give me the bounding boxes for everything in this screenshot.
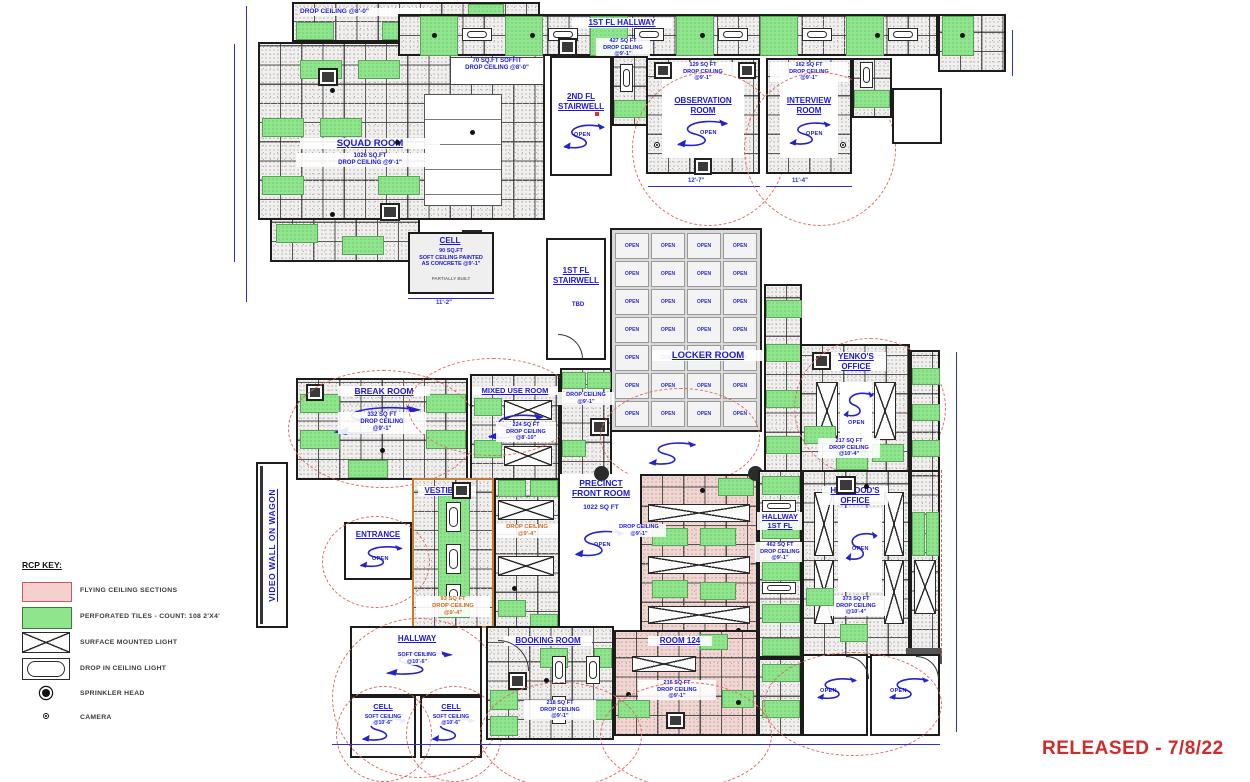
perforated-tile <box>840 624 868 642</box>
perforated-tile <box>942 16 974 56</box>
perforated-tile <box>618 700 650 718</box>
locker-cell: OPEN <box>723 261 757 287</box>
perforated-tile <box>300 430 340 449</box>
perforated-tile <box>766 300 802 318</box>
room-precinct-label: PRECINCT FRONT ROOM <box>560 478 642 498</box>
open-label: OPEN <box>574 132 591 138</box>
recessed-light <box>738 62 756 79</box>
locker-cell: OPEN <box>615 261 649 287</box>
legend-sprinkler-label: SPRINKLER HEAD <box>80 690 145 697</box>
open-label: OPEN <box>806 131 823 137</box>
room-precinct-info: 1022 SQ FT <box>568 504 634 512</box>
ceiling-slope-arrow <box>640 440 700 468</box>
dimension-label: 11'-2" <box>436 300 452 306</box>
sprinkler-head <box>875 33 880 38</box>
released-stamp: RELEASED - 7/8/22 <box>1042 738 1224 760</box>
camera <box>840 142 846 148</box>
open-label: OPEN <box>372 556 389 562</box>
perforated-tile <box>426 394 466 413</box>
surface-mounted-light <box>498 500 554 520</box>
sprinkler-head <box>512 586 517 591</box>
room-break-label: BREAK ROOM <box>338 386 430 396</box>
perforated-tile <box>766 436 802 454</box>
perforated-tile <box>766 344 802 362</box>
locker-cell: OPEN <box>615 289 649 315</box>
surface-mounted-light <box>648 556 750 574</box>
recessed-light <box>306 384 324 401</box>
perforated-tile <box>426 430 466 449</box>
drop-in-ceiling-light <box>446 544 461 574</box>
locker-cell: OPEN <box>723 289 757 315</box>
surface-mounted-light <box>498 556 554 576</box>
dimension-line <box>1012 30 1013 76</box>
drop-in-ceiling-light <box>552 656 566 684</box>
legend-perforated-label: PERFORATED TILES - COUNT: 108 2'X4' <box>80 613 220 620</box>
mid-tiles-note: DROP CEILING @9'-4" <box>496 524 558 538</box>
locker-cell: OPEN <box>651 233 685 259</box>
dimension-line <box>956 352 957 732</box>
room-hallway-1st-fl-info: 462 SQ FT DROP CEILING @9'-1" <box>755 542 805 562</box>
room-124-info: 216 SQ FT DROP CEILING @9'-1" <box>638 680 716 700</box>
locker-cell: OPEN <box>723 401 757 427</box>
perforated-tile <box>490 716 518 736</box>
sprinkler-head <box>700 488 705 493</box>
locker-cell: OPEN <box>651 373 685 399</box>
legend-flying-label: FLYING CEILING SECTIONS <box>80 587 177 594</box>
recessed-light <box>590 418 609 436</box>
locker-cell: OPEN <box>687 233 721 259</box>
video-wall-label: VIDEO WALL ON WAGON <box>267 489 277 602</box>
perforated-tile <box>296 22 334 40</box>
room-cell-upper-label: CELL <box>430 236 470 246</box>
recessed-light <box>380 203 400 221</box>
camera <box>654 142 660 148</box>
column <box>594 466 609 481</box>
perforated-tile <box>700 582 736 600</box>
dimension-label: 12'-7" <box>688 178 704 184</box>
sprinkler-head <box>960 33 965 38</box>
surface-mounted-light <box>632 656 696 672</box>
open-label: OPEN <box>890 688 907 694</box>
room-booking-label: BOOKING ROOM <box>504 636 592 646</box>
sprinkler-head <box>330 212 335 217</box>
room-cell-a-label: CELL <box>368 702 398 711</box>
room-mixed-use-label: MIXED USE ROOM <box>472 386 558 395</box>
locker-cell: OPEN <box>615 317 649 343</box>
locker-cell: OPEN <box>723 373 757 399</box>
flying-section-note: DROP CEILING @9'-1" <box>612 524 666 537</box>
room-interview-floor <box>780 76 838 158</box>
sprinkler-head <box>380 448 385 453</box>
drop-in-ceiling-light <box>888 28 918 41</box>
legend-camera-icon <box>43 713 49 719</box>
open-label: OPEN <box>594 542 611 548</box>
room-yenko-label: YENKO'S OFFICE <box>826 352 886 371</box>
surface-mounted-light <box>504 400 552 420</box>
drop-in-ceiling-light <box>620 64 633 92</box>
perforated-tile <box>652 580 688 598</box>
perforated-tile <box>562 440 586 457</box>
perforated-tile <box>562 372 586 389</box>
legend-camera-label: CAMERA <box>80 714 112 721</box>
perforated-tile <box>762 700 800 718</box>
perforated-tile <box>342 236 384 255</box>
open-label: OPEN <box>820 688 837 694</box>
room-observation-info: 129 SQ FT DROP CEILING @9'-1" <box>664 62 742 82</box>
perforated-tile <box>587 372 611 389</box>
perforated-tile <box>498 480 526 497</box>
room-hallway-cells-info: SOFT CEILING @10'-6" <box>392 652 442 665</box>
perforated-tile <box>700 528 736 546</box>
perforated-tile <box>420 16 458 56</box>
room-hallway-cells-label: HALLWAY <box>390 634 444 644</box>
perforated-tile <box>912 512 925 556</box>
room-squad-label: SQUAD ROOM <box>300 138 440 149</box>
dimension-line <box>246 6 247 302</box>
locker-cell: OPEN <box>615 373 649 399</box>
video-wall-box: VIDEO WALL ON WAGON <box>256 462 288 628</box>
locker-cell: OPEN <box>651 289 685 315</box>
room-observation-floor <box>662 76 744 158</box>
dimension-line <box>766 186 852 187</box>
perforated-tile <box>760 16 798 56</box>
video-wall-inner-line <box>260 466 263 624</box>
recessed-light <box>558 38 577 56</box>
perforated-tile <box>262 118 304 137</box>
perforated-tile <box>490 690 518 710</box>
squad-open-area <box>424 94 502 206</box>
legend-surface-light-icon <box>22 632 70 653</box>
room-2nd-fl-stairwell <box>550 56 612 176</box>
perforated-tile <box>262 176 304 195</box>
room-mixed-use-info: 224 SQ FT DROP CEILING @8'-10" <box>496 422 556 442</box>
room-haywood-info: 373 SQ FT DROP CEILING @10'-4" <box>826 596 886 616</box>
locker-cell: OPEN <box>615 345 649 371</box>
room-interview-label: INTERVIEW ROOM <box>782 96 836 115</box>
surface-mounted-light <box>648 606 750 624</box>
room-interview-info: 162 SQ FT DROP CEILING @9'-1" <box>770 62 848 82</box>
sprinkler-head <box>864 484 869 489</box>
room-locker-label: LOCKER ROOM <box>652 350 764 361</box>
perforated-tile <box>348 460 388 478</box>
legend-drop-light-icon <box>22 658 70 680</box>
perforated-tile <box>474 398 502 416</box>
drop-in-ceiling-light <box>586 656 600 684</box>
legend-flying-swatch <box>22 582 72 602</box>
drop-in-ceiling-light <box>860 62 873 88</box>
room-cell-a-info: SOFT CEILING @10'-6" <box>354 714 412 726</box>
room-1st-fl-hallway-label: 1ST FL HALLWAY <box>572 18 672 28</box>
perforated-tile <box>722 690 754 708</box>
sprinkler-head <box>432 33 437 38</box>
recessed-light <box>812 352 831 370</box>
surface-mounted-light <box>874 382 896 440</box>
dimension-line <box>648 186 760 187</box>
recessed-light <box>694 158 712 175</box>
perforated-tile <box>676 16 714 56</box>
drop-in-ceiling-light <box>802 28 832 41</box>
locker-cell: OPEN <box>687 317 721 343</box>
locker-cell: OPEN <box>615 401 649 427</box>
room-cell-b-info: SOFT CEILING @10'-6" <box>422 714 480 726</box>
coverage-boundary <box>941 470 942 656</box>
locker-cell: OPEN <box>723 233 757 259</box>
recessed-light <box>654 62 672 79</box>
sprinkler-head <box>544 678 549 683</box>
open-label: OPEN <box>700 130 717 136</box>
room-booking-info: 218 SQ FT DROP CEILING @9'-1" <box>524 700 596 720</box>
drop-in-ceiling-light <box>462 28 492 41</box>
room-cell-upper-note: PARTIALLY BUILT <box>428 276 474 281</box>
perforated-tile <box>854 90 890 108</box>
perforated-tile <box>762 638 800 656</box>
locker-cell: OPEN <box>687 401 721 427</box>
perforated-tile <box>474 440 502 458</box>
perforated-tile <box>762 604 800 623</box>
room-vestibule-info: 93 SQ FT DROP CEILING @9'-4" <box>416 596 490 617</box>
room-124-label: ROOM 124 <box>648 636 712 646</box>
soffit-note: 70 SQ.FT SOFFIT DROP CEILING @8'-0" <box>450 57 544 85</box>
perforated-tile <box>766 390 802 408</box>
recessed-light <box>836 476 856 494</box>
locker-cell: OPEN <box>615 233 649 259</box>
perforated-tile <box>718 478 754 496</box>
sprinkler-head <box>736 700 741 705</box>
recessed-light <box>318 68 338 86</box>
room-break-info: 332 SQ FT DROP CEILING @9'-1" <box>338 412 426 434</box>
perforated-tile <box>498 600 526 617</box>
perforated-tile <box>505 16 543 56</box>
legend-surface-light-label: SURFACE MOUNTED LIGHT <box>80 639 177 646</box>
locker-cell: OPEN <box>651 261 685 287</box>
drop-in-ceiling-light <box>762 582 796 594</box>
recessed-light <box>452 482 471 499</box>
room-1st-fl-stairwell-label: 1ST FL STAIRWELL <box>548 266 604 285</box>
recessed-light <box>508 672 527 690</box>
dimension-line <box>408 298 494 299</box>
sprinkler-head <box>470 130 475 135</box>
open-label: OPEN <box>852 546 869 552</box>
perforated-tile <box>912 368 940 385</box>
legend-perforated-swatch <box>22 607 72 629</box>
dimension-label: 11'-4" <box>792 178 808 184</box>
perforated-tile <box>912 440 940 457</box>
room-squad-info: 1026 SQ.FT DROP CEILING @9'-1" <box>296 153 444 167</box>
locker-cell: OPEN <box>651 317 685 343</box>
perforated-tile <box>320 118 362 137</box>
legend-sprinkler-icon <box>42 689 50 697</box>
perforated-tile <box>358 60 400 79</box>
legend-drop-light-label: DROP IN CEILING LIGHT <box>80 665 166 672</box>
perforated-tile <box>378 176 420 195</box>
perforated-tile <box>762 476 800 495</box>
locker-cell: OPEN <box>687 261 721 287</box>
room-cell-b-label: CELL <box>436 702 466 711</box>
surface-mounted-light <box>648 504 750 522</box>
locker-room-grid: OPENOPENOPENOPENOPENOPENOPENOPENOPENOPEN… <box>610 228 762 432</box>
red-marker <box>595 112 599 116</box>
sprinkler-head <box>395 140 400 145</box>
room-entrance-label: ENTRANCE <box>348 530 408 540</box>
drop-in-ceiling-light <box>762 500 796 512</box>
room-1st-fl-stairwell-status: TBD <box>566 302 590 309</box>
perforated-tile <box>806 588 834 606</box>
locker-cell: OPEN <box>687 373 721 399</box>
recessed-light <box>666 712 685 729</box>
perforated-tile <box>594 700 612 720</box>
locker-cell: OPEN <box>651 401 685 427</box>
sprinkler-head <box>700 33 705 38</box>
drop-in-ceiling-light <box>718 28 748 41</box>
locker-cell: OPEN <box>687 289 721 315</box>
perforated-tile <box>762 664 800 682</box>
mid-strip-note: DROP CEILING @9'-1" <box>558 392 614 405</box>
perforated-tile <box>530 480 558 497</box>
room-hallway-1st-fl-label: HALLWAY 1ST FL <box>757 512 803 530</box>
perforated-tile <box>762 562 800 581</box>
perforated-tile <box>614 100 648 118</box>
floor-plan-canvas: DROP CEILING @8'-0" SQUAD ROOM 1026 SQ.F… <box>0 0 1250 782</box>
room-2nd-fl-stairwell-label: 2ND FL STAIRWELL <box>551 92 611 111</box>
dimension-line <box>234 44 235 262</box>
room-yenko-info: 217 SQ FT DROP CEILING @10'-4" <box>818 438 880 458</box>
sprinkler-head <box>330 88 335 93</box>
perforated-tile <box>912 404 940 421</box>
legend-heading: RCP KEY: <box>22 560 62 570</box>
sprinkler-head <box>626 692 631 697</box>
surface-mounted-light <box>884 560 904 624</box>
room-cell-upper-info: 90 SQ.FT SOFT CEILING PAINTED AS CONCRET… <box>410 248 492 268</box>
room-observation-label: OBSERVATION ROOM <box>666 96 740 115</box>
dimension-line <box>332 744 940 745</box>
open-label: OPEN <box>848 420 865 426</box>
perforated-tile <box>276 224 318 243</box>
drop-in-ceiling-light <box>446 502 461 532</box>
unlabeled-room <box>892 88 942 144</box>
perforated-tile <box>926 512 939 556</box>
surface-mounted-light <box>504 446 552 466</box>
room-yenko-floor <box>840 382 872 440</box>
room-1st-fl-hallway-info: 427 SQ FT DROP CEILING @9'-1" <box>596 38 650 58</box>
sprinkler-head <box>530 33 535 38</box>
surface-mounted-light <box>914 560 936 614</box>
locker-cell: OPEN <box>723 317 757 343</box>
